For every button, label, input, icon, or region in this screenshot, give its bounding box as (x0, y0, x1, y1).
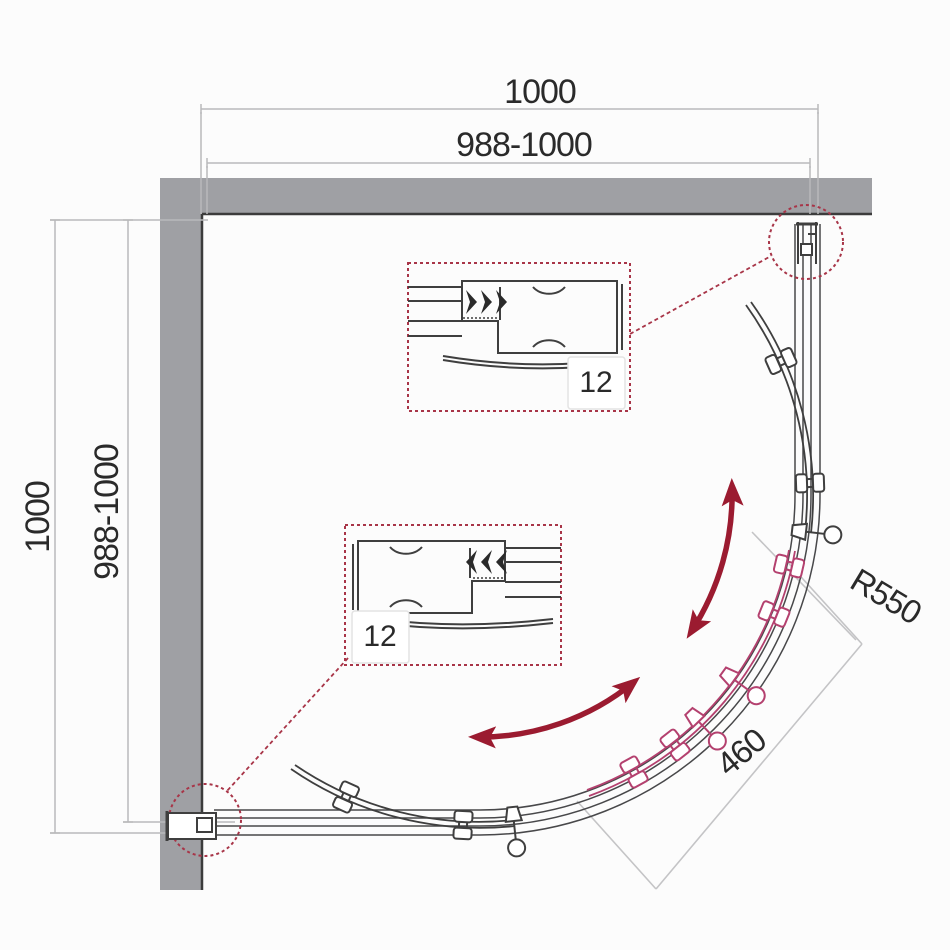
door-roller (453, 811, 472, 840)
callout-leader-bottom (227, 658, 348, 791)
dim-left-height-label: 1000 (21, 481, 55, 553)
door-roller (765, 347, 798, 375)
door-roller (796, 474, 825, 493)
dim-top-width-label: 1000 (504, 75, 576, 109)
open-door-roller (758, 600, 791, 627)
callout-circle-top-right (769, 205, 843, 279)
detail-callout-top-label: 12 (579, 368, 612, 398)
wall-top (160, 178, 872, 215)
dim-left-adjust-label: 988-1000 (90, 444, 124, 580)
detail-callout-bottom-label: 12 (363, 622, 396, 652)
door-roller (332, 781, 360, 814)
opening-ext-line-lower (577, 801, 656, 889)
callout-leader-top (630, 256, 771, 334)
door-bottom-left (291, 765, 526, 857)
opening-dim-line (656, 644, 862, 889)
dim-top-adjust-label: 988-1000 (456, 128, 592, 162)
annotation-lines (577, 532, 862, 889)
adjustment-chevrons (466, 550, 507, 574)
slide-arrow-lower (476, 682, 634, 737)
wall-profile-bottom-left (167, 811, 216, 841)
door-open-position (587, 550, 805, 796)
slide-arrows (476, 486, 732, 737)
wall-profile-top-right (796, 222, 818, 264)
slide-arrow-upper (691, 486, 732, 632)
shower-enclosure-diagram: 1000 988-1000 1000 988-1000 R550 460 12 … (0, 0, 950, 950)
walls (160, 178, 872, 890)
wall-left (160, 178, 202, 890)
